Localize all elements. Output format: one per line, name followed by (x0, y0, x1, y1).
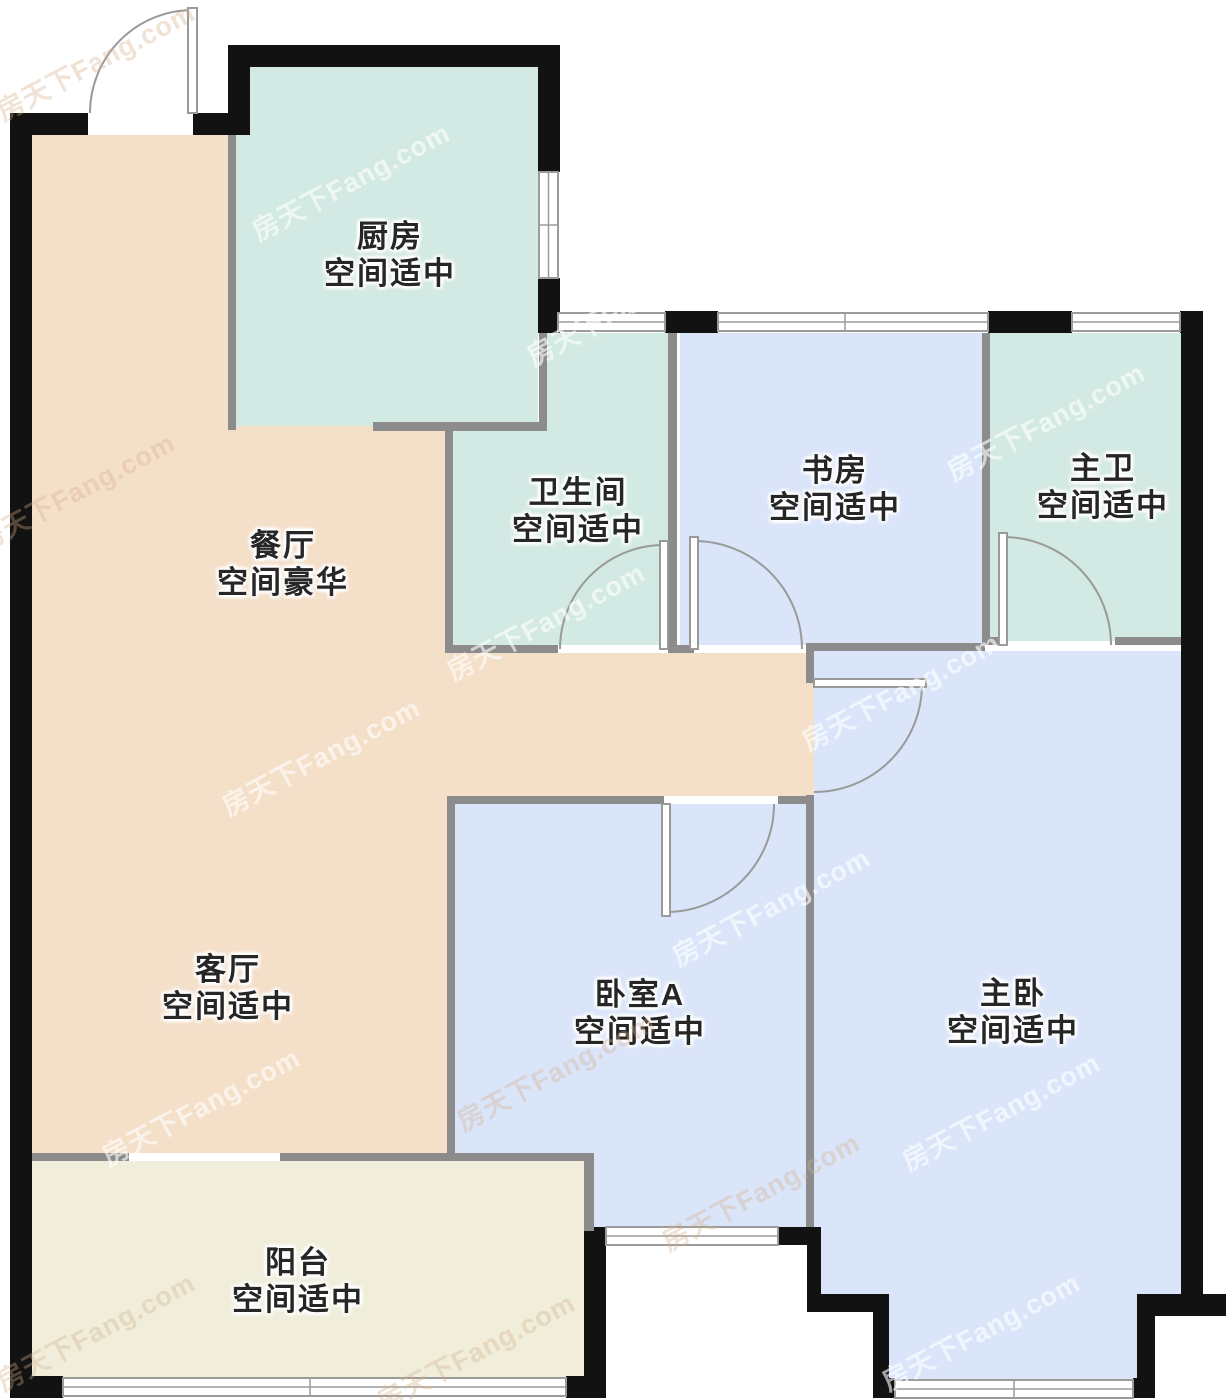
room-size-note: 空间豪华 (217, 564, 349, 601)
room-name: 主卧 (947, 975, 1079, 1012)
room-size-note: 空间适中 (574, 1013, 706, 1050)
window-bedroom-a (606, 1227, 778, 1245)
room-fill-master-bedroom (814, 651, 1181, 1294)
room-fills (32, 67, 1181, 1380)
room-size-note: 空间适中 (512, 511, 644, 548)
room-size-note: 空间适中 (162, 988, 294, 1025)
room-label-bedroom-a: 卧室A 空间适中 (574, 976, 706, 1050)
floorplan-page: 厨房 空间适中 卫生间 空间适中 书房 空间适中 主卫 空间适中 餐厅 空间豪华… (0, 0, 1226, 1400)
room-size-note: 空间适中 (324, 255, 456, 292)
window-study (718, 313, 988, 331)
room-size-note: 空间适中 (232, 1281, 364, 1318)
window-balcony (63, 1378, 566, 1396)
room-name: 卧室A (574, 976, 706, 1013)
room-fill-bedroom-a-south (594, 1157, 806, 1227)
window-master-bedroom (895, 1380, 1133, 1398)
room-label-bathroom: 卫生间 空间适中 (512, 474, 644, 548)
room-size-note: 空间适中 (947, 1012, 1079, 1049)
room-size-note: 空间适中 (769, 489, 901, 526)
window-kitchen (539, 172, 558, 278)
window-bathroom (558, 313, 665, 331)
room-name: 卫生间 (512, 474, 644, 511)
room-fill-corridor (447, 653, 814, 796)
room-name: 客厅 (162, 951, 294, 988)
room-label-study: 书房 空间适中 (769, 452, 901, 526)
room-size-note: 空间适中 (1037, 487, 1169, 524)
room-fill-master-bedroom-south (889, 1294, 1137, 1380)
room-fill-bathroom-upper (547, 333, 668, 445)
room-name: 阳台 (232, 1244, 364, 1281)
room-label-balcony: 阳台 空间适中 (232, 1244, 364, 1318)
room-name: 厨房 (324, 218, 456, 255)
room-label-kitchen: 厨房 空间适中 (324, 218, 456, 292)
entry-door (90, 8, 197, 113)
room-label-master-bath: 主卫 空间适中 (1037, 450, 1169, 524)
floorplan-drawing (0, 0, 1226, 1400)
room-label-master-bedroom: 主卧 空间适中 (947, 975, 1079, 1049)
room-name: 主卫 (1037, 450, 1169, 487)
window-master-bath (1072, 313, 1180, 331)
room-name: 书房 (769, 452, 901, 489)
room-label-dining: 餐厅 空间豪华 (217, 527, 349, 601)
room-label-living: 客厅 空间适中 (162, 951, 294, 1025)
room-name: 餐厅 (217, 527, 349, 564)
